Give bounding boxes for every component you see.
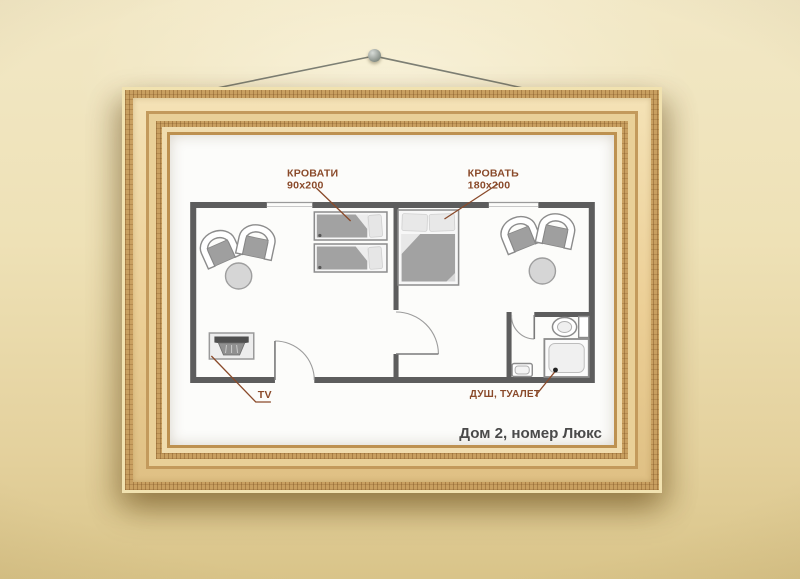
sink-icon (512, 364, 532, 377)
frame-molding: КРОВАТИ 90x200 КРОВАТЬ 180x200 TV ДУШ, Т… (133, 98, 651, 482)
mat-board: КРОВАТИ 90x200 КРОВАТЬ 180x200 TV ДУШ, Т… (170, 135, 614, 445)
double-bed-size: 180x200 (468, 180, 511, 192)
twin-beds-size: 90x200 (287, 180, 324, 192)
twin-beds-label: КРОВАТИ (287, 168, 338, 180)
door-icon (396, 312, 438, 354)
frame-molding: КРОВАТИ 90x200 КРОВАТЬ 180x200 TV ДУШ, Т… (162, 127, 622, 453)
frame-molding: КРОВАТИ 90x200 КРОВАТЬ 180x200 TV ДУШ, Т… (146, 111, 638, 469)
armchair-icon (195, 225, 241, 269)
door-icon (512, 315, 535, 339)
frame-molding-inner: КРОВАТИ 90x200 КРОВАТЬ 180x200 TV ДУШ, Т… (167, 132, 617, 448)
single-bed-icon (314, 244, 387, 272)
tv-label: TV (258, 389, 272, 401)
door-icon (275, 341, 314, 380)
wire-icon (217, 56, 374, 88)
bathroom-label: ДУШ, ТУАЛЕТ (470, 389, 541, 400)
picture-frame: КРОВАТИ 90x200 КРОВАТЬ 180x200 TV ДУШ, Т… (122, 87, 662, 493)
round-table-icon (226, 263, 252, 289)
single-bed-icon (314, 212, 387, 240)
wall: { "frame": { "caption": "Дом 2, номер Лю… (0, 0, 800, 579)
window-icon (267, 201, 312, 209)
round-table-icon (529, 258, 555, 284)
double-bed-icon (398, 210, 459, 285)
nail-icon (368, 49, 381, 62)
shower-drain-dot (553, 368, 558, 373)
double-bed-label: КРОВАТЬ (468, 168, 520, 180)
door-opening (275, 376, 314, 384)
frame-molding-outer: КРОВАТИ 90x200 КРОВАТЬ 180x200 TV ДУШ, Т… (125, 90, 659, 490)
window-icon (489, 201, 538, 209)
shower-icon (544, 339, 588, 377)
tv-icon (209, 333, 253, 359)
floor-plan: КРОВАТИ 90x200 КРОВАТЬ 180x200 TV ДУШ, Т… (170, 135, 614, 445)
frame-molding: КРОВАТИ 90x200 КРОВАТЬ 180x200 TV ДУШ, Т… (156, 121, 628, 459)
armchair-icon (236, 222, 278, 261)
plan-caption: Дом 2, номер Люкс (459, 425, 602, 442)
frame-molding: КРОВАТИ 90x200 КРОВАТЬ 180x200 TV ДУШ, Т… (149, 114, 635, 466)
armchair-icon (496, 211, 542, 254)
wire-icon (374, 56, 523, 88)
toilet-icon (552, 317, 588, 338)
armchair-icon (535, 211, 577, 250)
